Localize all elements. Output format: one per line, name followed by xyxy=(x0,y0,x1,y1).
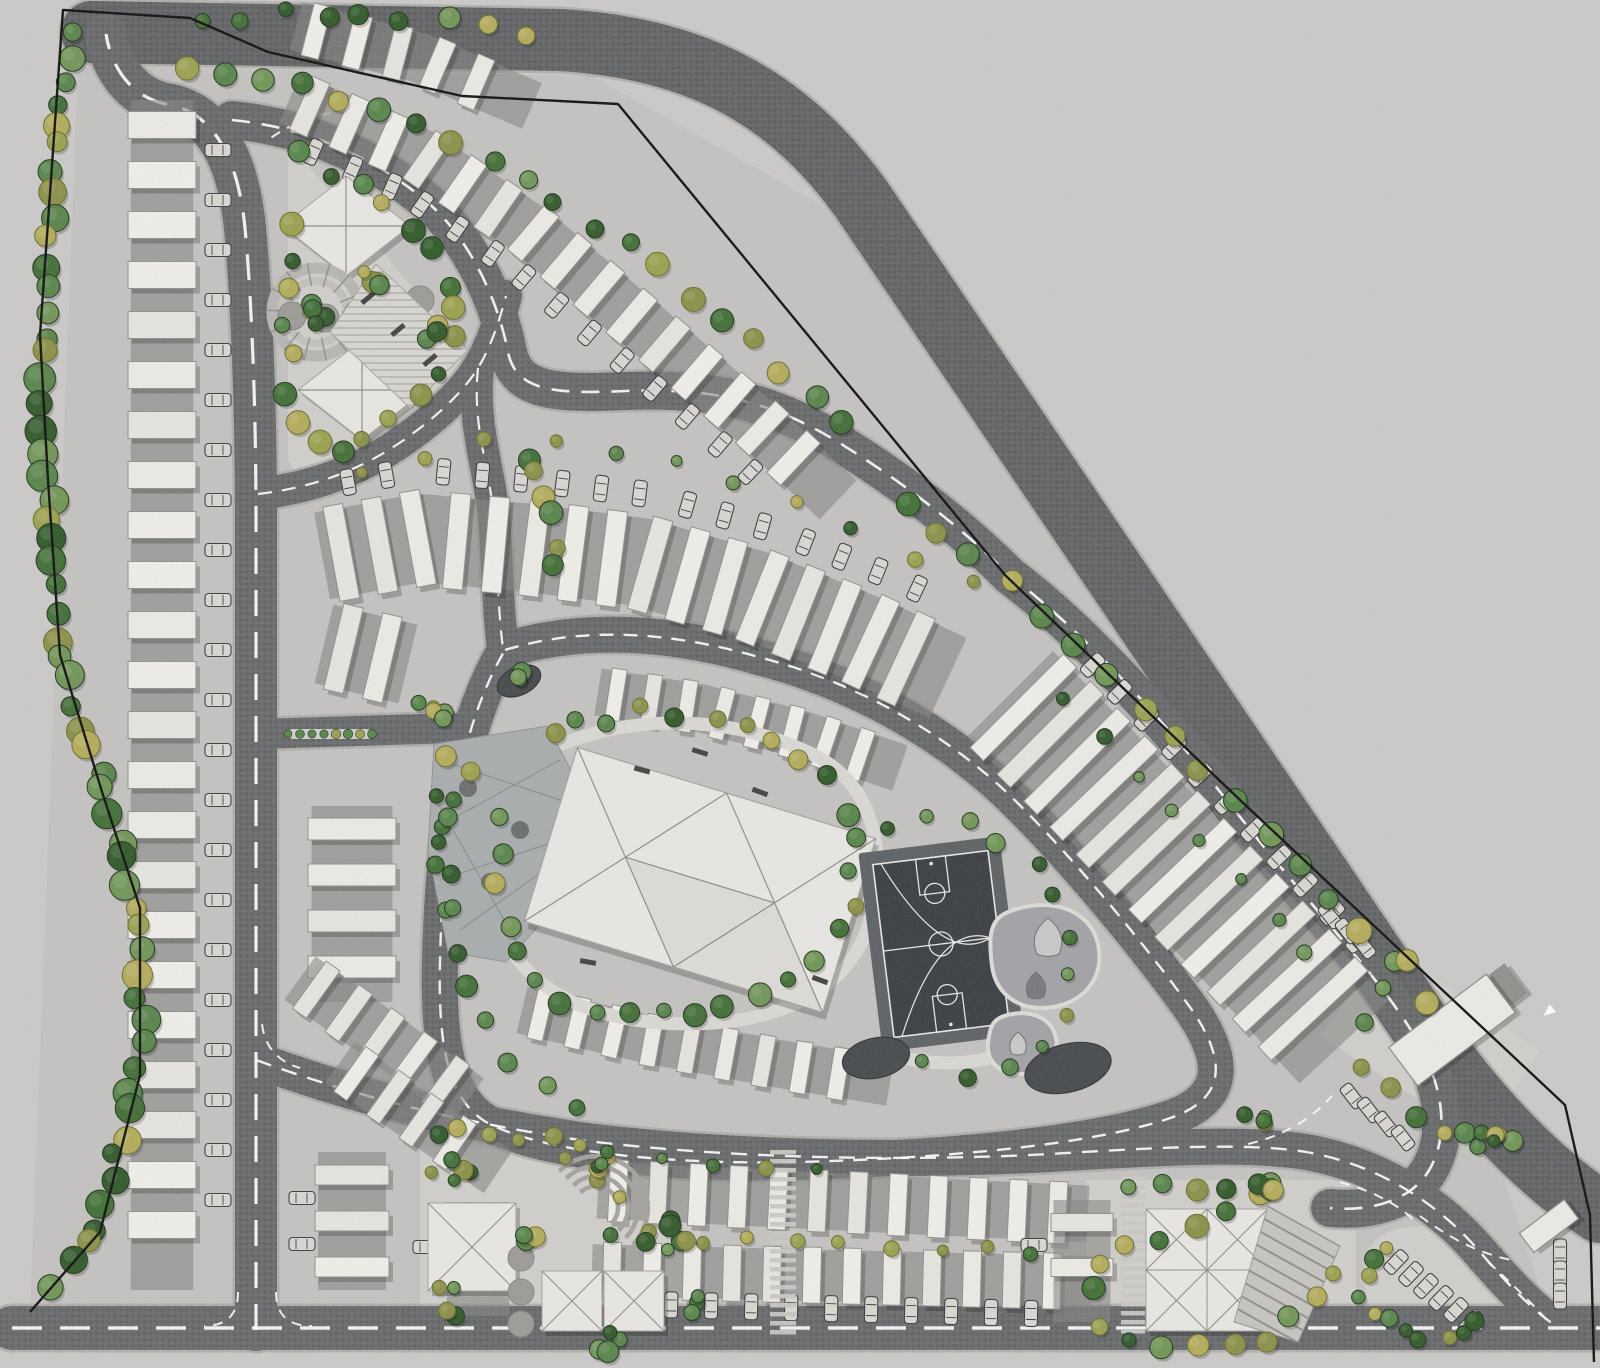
texture-grain-overlay xyxy=(0,0,1600,1368)
texture-layer xyxy=(0,0,1600,1368)
master-plan-canvas xyxy=(0,0,1600,1368)
site-plan xyxy=(0,0,1600,1368)
